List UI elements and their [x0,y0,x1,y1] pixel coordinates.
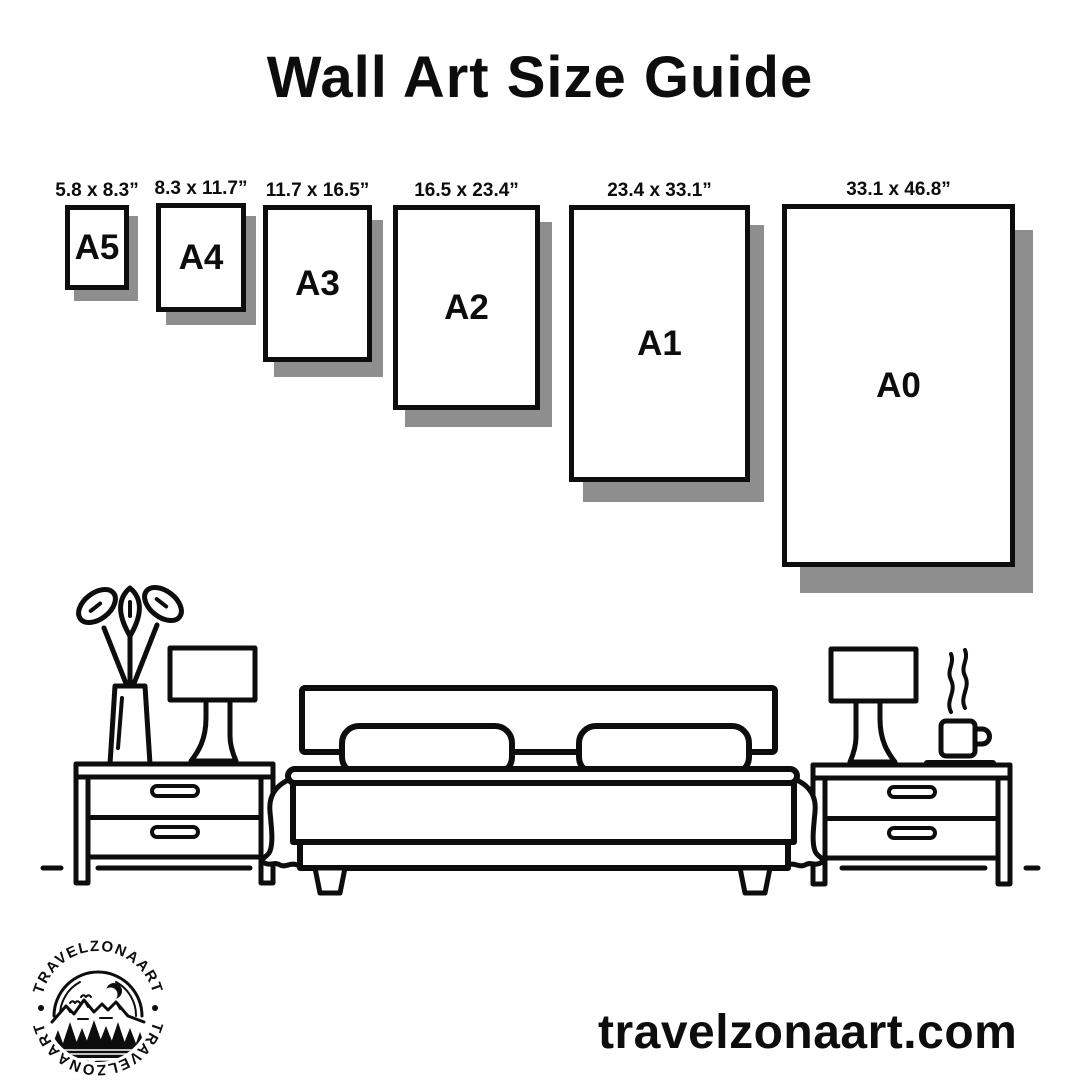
size-letter-a3: A3 [295,264,340,304]
paper-size-a0: 33.1 x 46.8” A0 [782,204,1015,567]
moon-icon [104,983,123,1002]
paper-size-a4: 8.3 x 11.7” A4 [156,203,246,312]
size-letter-a0: A0 [876,366,921,406]
dimension-label-a3: 11.7 x 16.5” [266,180,370,202]
table-lamp-right [831,649,916,762]
paper-size-a5: 5.8 x 8.3” A5 [65,205,129,290]
size-letter-a4: A4 [179,238,224,278]
size-guide-poster: Wall Art Size Guide 5.8 x 8.3” A5 8.3 x … [0,0,1080,1080]
svg-text:TRAVELZONAART: TRAVELZONAART [30,938,166,996]
dimension-label-a1: 23.4 x 33.1” [607,180,712,202]
paper-size-a2: 16.5 x 23.4” A2 [393,205,540,410]
nightstand-left [76,764,273,883]
page-title: Wall Art Size Guide [0,44,1080,111]
size-letter-a5: A5 [75,228,120,268]
table-lamp-left [170,648,255,761]
size-letter-a2: A2 [444,288,489,328]
bed [263,688,823,893]
dimension-label-a0: 33.1 x 46.8” [846,179,951,201]
pine-trees-icon [52,1020,145,1046]
bird-icons [70,995,91,1003]
dimension-label-a5: 5.8 x 8.3” [55,180,138,202]
website-url: travelzonaart.com [598,1005,1017,1060]
brand-logo: TRAVELZONAART TRAVELZONAART [8,918,188,1080]
paper-size-a3: 11.7 x 16.5” A3 [263,205,372,362]
duvet [293,783,794,842]
paper-size-a1: 23.4 x 33.1” A1 [569,205,750,482]
dimension-label-a4: 8.3 x 11.7” [155,178,248,200]
logo-arc-text-top: TRAVELZONAART [30,938,166,996]
logo-dot-left [38,1005,44,1011]
bed-leg-right [740,868,770,893]
logo-dot-right [152,1005,158,1011]
bed-base [300,842,788,868]
size-letter-a1: A1 [637,324,682,364]
bedroom-illustration [0,580,1080,900]
dimension-label-a2: 16.5 x 23.4” [414,180,519,202]
mountains-icon [52,1000,144,1022]
bed-leg-left [315,868,345,893]
coffee-cup [927,650,993,763]
